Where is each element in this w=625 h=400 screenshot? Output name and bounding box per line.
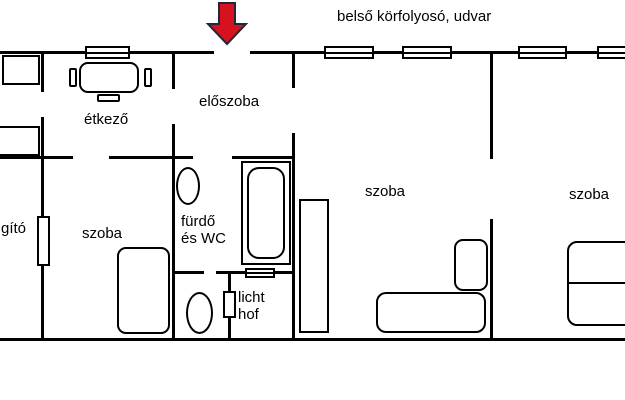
- bathroom-label-line2: és WC: [181, 230, 226, 247]
- window-top-2: [402, 46, 452, 59]
- dining-chair-right: [144, 68, 152, 87]
- window-lightwell-left: [223, 291, 236, 318]
- window-dining: [85, 46, 130, 59]
- lightwell-label-line1: licht: [238, 289, 265, 306]
- entrance-arrow-icon: [200, 0, 255, 50]
- armchair-middle-room: [454, 239, 488, 291]
- corridor-label: belső körfolyosó, udvar: [337, 8, 491, 26]
- left-edge-text-fragment: gító: [1, 220, 26, 238]
- window-lightwell-top: [245, 268, 275, 278]
- toilet: [186, 292, 213, 334]
- wall-mid-h-center: [109, 156, 193, 159]
- window-top-3: [518, 46, 567, 59]
- wall-rooms-divider-upper: [490, 51, 493, 159]
- cabinet-top-left: [2, 55, 40, 85]
- room-label-middle: szoba: [365, 183, 405, 201]
- bed-left-room: [117, 247, 170, 334]
- lightwell-label-line2: hof: [238, 306, 265, 323]
- wall-hall-right-lower: [292, 133, 295, 341]
- bed-divider-line: [569, 282, 625, 284]
- floor-plan: belső körfolyosó, udvar előszoba étkező …: [0, 0, 625, 400]
- sofa-middle-room: [376, 292, 486, 333]
- wall-left-upper: [41, 51, 44, 92]
- bathroom-label-line1: fürdő: [181, 213, 226, 230]
- wall-wc-top: [172, 271, 204, 274]
- wall-hall-right-upper: [292, 51, 295, 88]
- window-top-1: [324, 46, 374, 59]
- window-top-4: [597, 46, 625, 59]
- entrance-arrow-shape: [208, 3, 246, 44]
- bed-right-room: [567, 241, 625, 326]
- dining-table: [79, 62, 139, 93]
- dining-chair-left: [69, 68, 77, 87]
- wardrobe-middle-room: [299, 199, 329, 333]
- wall-bottom: [0, 338, 625, 341]
- room-label-bathroom: fürdő és WC: [181, 213, 226, 247]
- dining-chair-bottom: [97, 94, 120, 102]
- room-label-dining: étkező: [84, 111, 128, 129]
- room-label-right: szoba: [569, 186, 609, 204]
- wall-rooms-divider-lower: [490, 219, 493, 341]
- sink: [176, 167, 200, 205]
- wall-hall-left-upper: [172, 51, 175, 89]
- room-label-lightwell: licht hof: [238, 289, 265, 323]
- wall-bathroom-top: [232, 156, 295, 159]
- window-left-wall: [37, 216, 50, 266]
- bathtub-inner: [247, 167, 285, 259]
- cabinet-left: [0, 126, 40, 156]
- room-label-left: szoba: [82, 225, 122, 243]
- room-label-entry-hall: előszoba: [199, 93, 259, 111]
- wall-mid-h-left: [0, 156, 73, 159]
